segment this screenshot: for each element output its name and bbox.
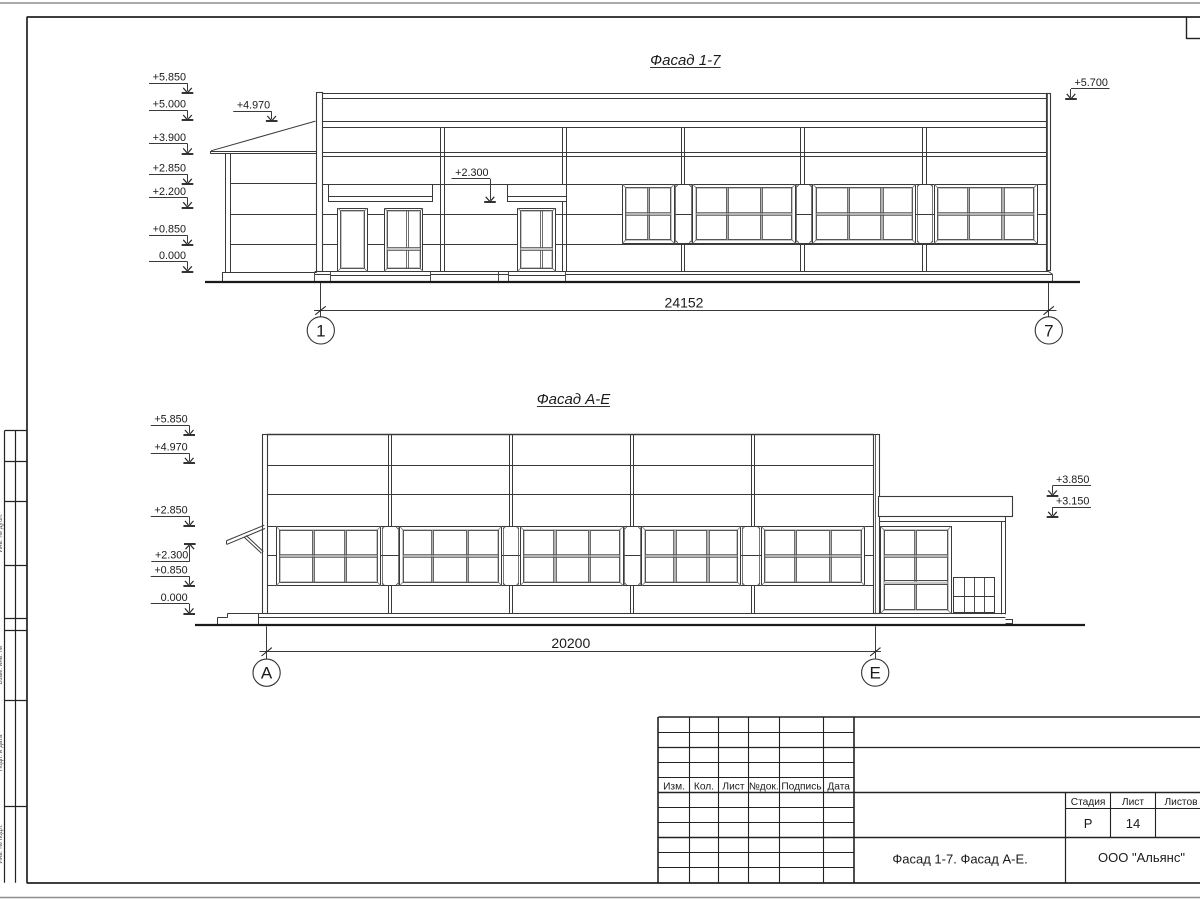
svg-text:ООО "Альянс": ООО "Альянс": [1098, 850, 1185, 865]
svg-text:0.000: 0.000: [161, 592, 188, 604]
svg-text:+5.700: +5.700: [1075, 77, 1108, 89]
svg-text:Листов: Листов: [1164, 797, 1197, 808]
svg-text:Лист: Лист: [722, 781, 744, 792]
svg-text:Инв. № дубл.: Инв. № дубл.: [0, 513, 4, 552]
svg-text:№док.: №док.: [749, 781, 779, 792]
svg-text:+2.300: +2.300: [155, 550, 188, 562]
svg-text:+2.850: +2.850: [154, 505, 187, 517]
svg-text:Изм.: Изм.: [663, 781, 685, 792]
svg-text:Подпись: Подпись: [781, 781, 821, 792]
svg-text:+2.300: +2.300: [455, 167, 488, 179]
svg-text:+2.850: +2.850: [153, 162, 186, 174]
svg-text:1: 1: [316, 321, 325, 340]
svg-text:Подп. и дата: Подп. и дата: [0, 734, 4, 772]
svg-text:Инв. № подл.: Инв. № подл.: [0, 824, 4, 863]
svg-text:Е: Е: [870, 664, 881, 683]
svg-text:+3.850: +3.850: [1056, 474, 1089, 486]
svg-text:Лист: Лист: [1122, 797, 1144, 808]
svg-text:Дата: Дата: [827, 781, 850, 792]
svg-text:+3.900: +3.900: [153, 132, 186, 144]
svg-text:Фасад 1-7: Фасад 1-7: [650, 52, 721, 69]
svg-text:+4.970: +4.970: [237, 100, 270, 112]
svg-text:+3.150: +3.150: [1056, 496, 1089, 508]
svg-text:+0.850: +0.850: [154, 565, 187, 577]
svg-text:+5.850: +5.850: [154, 414, 187, 426]
svg-text:А: А: [261, 664, 273, 683]
svg-text:20200: 20200: [551, 635, 590, 651]
svg-text:0.000: 0.000: [159, 250, 186, 262]
svg-text:14: 14: [1126, 816, 1140, 831]
svg-text:+5.850: +5.850: [153, 72, 186, 84]
svg-text:Фасад 1-7. Фасад А-Е.: Фасад 1-7. Фасад А-Е.: [892, 851, 1027, 866]
svg-text:+2.200: +2.200: [153, 186, 186, 198]
svg-text:Кол.: Кол.: [694, 781, 714, 792]
svg-text:Р: Р: [1084, 816, 1093, 831]
svg-text:+5.000: +5.000: [153, 99, 186, 111]
svg-text:Стадия: Стадия: [1071, 797, 1106, 808]
svg-text:+4.970: +4.970: [154, 442, 187, 454]
svg-text:7: 7: [1044, 321, 1053, 340]
svg-text:+0.850: +0.850: [153, 223, 186, 235]
svg-text:24152: 24152: [665, 295, 704, 311]
svg-text:Взам. инв. №: Взам. инв. №: [0, 645, 4, 684]
svg-text:Фасад А-Е: Фасад А-Е: [537, 391, 612, 408]
